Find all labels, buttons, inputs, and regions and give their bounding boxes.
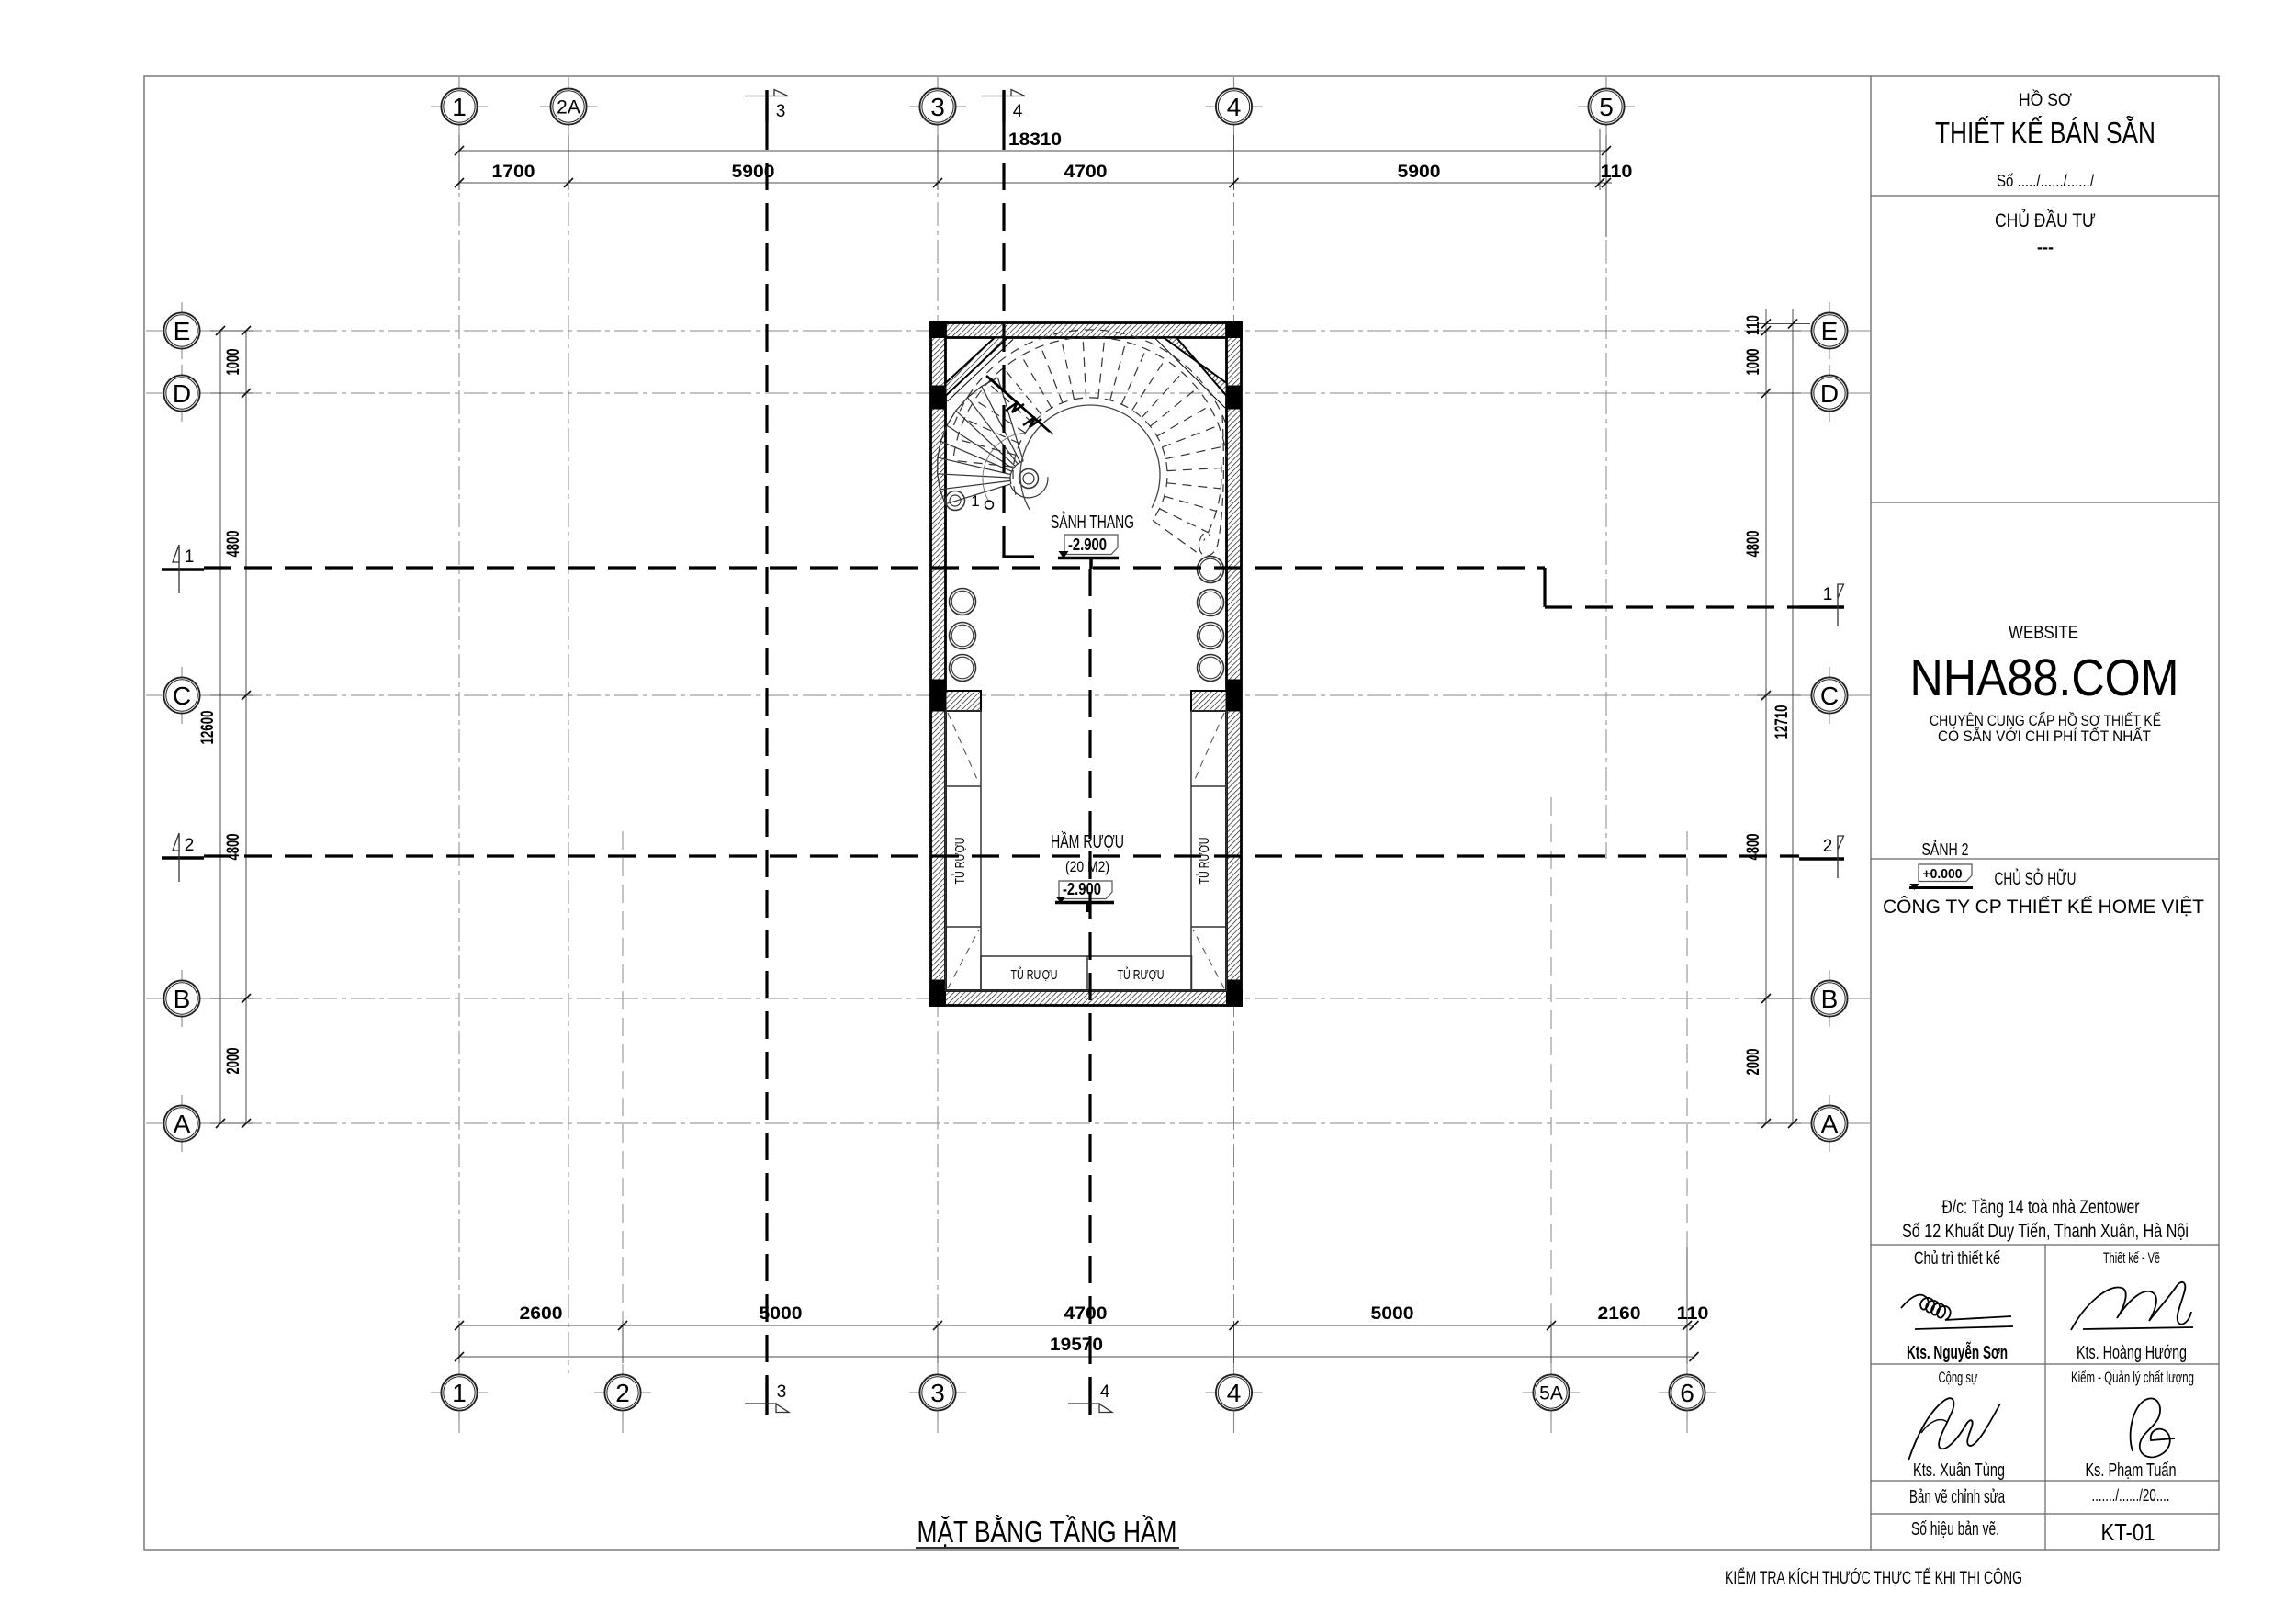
svg-text:4700: 4700: [1064, 163, 1108, 182]
svg-text:3: 3: [930, 93, 945, 121]
svg-text:2000: 2000: [1744, 1049, 1763, 1076]
svg-text:A: A: [1821, 1110, 1839, 1138]
svg-text:2160: 2160: [1598, 1304, 1641, 1324]
svg-text:Kiểm - Quản lý chất lượng: Kiểm - Quản lý chất lượng: [2071, 1369, 2194, 1386]
svg-text:SẢNH 2: SẢNH 2: [1922, 840, 1969, 859]
svg-text:TỦ RƯỢU: TỦ RƯỢU: [951, 838, 968, 885]
svg-text:Cộng sự: Cộng sự: [1939, 1369, 1978, 1386]
svg-text:Kts. Xuân Tùng: Kts. Xuân Tùng: [1913, 1460, 2005, 1481]
svg-text:CÔNG TY CP THIẾT KẾ HOME VIỆT: CÔNG TY CP THIẾT KẾ HOME VIỆT: [1883, 895, 2204, 918]
svg-text:C: C: [173, 682, 191, 710]
svg-text:5000: 5000: [1371, 1304, 1414, 1324]
svg-text:6: 6: [1680, 1379, 1694, 1407]
svg-text:2: 2: [615, 1379, 630, 1407]
svg-text:Số hiệu bản vẽ.: Số hiệu bản vẽ.: [1911, 1519, 1999, 1539]
svg-text:2A: 2A: [557, 97, 580, 118]
svg-text:TỦ RƯỢU: TỦ RƯỢU: [1011, 966, 1058, 983]
svg-text:E: E: [1821, 317, 1839, 345]
svg-text:MẶT BẰNG TẦNG HẦM: MẶT BẰNG TẦNG HẦM: [917, 1515, 1177, 1549]
svg-text:......./....../20....: ......./....../20....: [2092, 1486, 2170, 1505]
svg-text:3: 3: [776, 102, 786, 121]
svg-text:1: 1: [971, 492, 979, 510]
svg-text:4700: 4700: [1064, 1304, 1108, 1324]
svg-text:1: 1: [1823, 585, 1833, 604]
svg-text:(20 M2): (20 M2): [1065, 858, 1109, 875]
svg-text:Bản vẽ chỉnh sửa: Bản vẽ chỉnh sửa: [1909, 1487, 2006, 1507]
svg-text:Kts. Nguyễn Sơn: Kts. Nguyễn Sơn: [1907, 1341, 2008, 1363]
svg-text:1: 1: [452, 1379, 467, 1407]
svg-text:Chủ trì thiết kế: Chủ trì thiết kế: [1914, 1249, 2000, 1269]
svg-text:110: 110: [1601, 163, 1633, 182]
svg-text:1: 1: [185, 547, 195, 567]
svg-text:Thiết kế - Vẽ: Thiết kế - Vẽ: [2103, 1249, 2160, 1267]
svg-text:2: 2: [1823, 837, 1833, 856]
svg-text:SẢNH THANG: SẢNH THANG: [1051, 512, 1134, 533]
svg-text:Số 12 Khuất Duy Tiến, Thanh Xu: Số 12 Khuất Duy Tiến, Thanh Xuân, Hà Nội: [1902, 1221, 2189, 1242]
svg-text:3: 3: [777, 1382, 787, 1402]
svg-text:E: E: [174, 317, 191, 345]
svg-text:KIỂM TRA KÍCH THƯỚC THỰC TẾ KH: KIỂM TRA KÍCH THƯỚC THỰC TẾ KHI THI CÔNG: [1725, 1568, 2022, 1588]
svg-text:TỦ RƯỢU: TỦ RƯỢU: [1118, 966, 1165, 983]
svg-text:CÓ SẴN VỚI CHI PHÍ TỐT NHẤT: CÓ SẴN VỚI CHI PHÍ TỐT NHẤT: [1938, 727, 2151, 745]
svg-text:NHA88.COM: NHA88.COM: [1910, 648, 2179, 707]
svg-text:2600: 2600: [520, 1304, 563, 1324]
svg-text:4: 4: [1013, 102, 1023, 121]
svg-text:C: C: [1820, 682, 1839, 710]
svg-text:1000: 1000: [1744, 349, 1763, 376]
svg-text:5900: 5900: [1398, 163, 1441, 182]
svg-text:4: 4: [1100, 1382, 1110, 1402]
svg-text:19570: 19570: [1050, 1336, 1103, 1355]
svg-text:4800: 4800: [1744, 531, 1763, 558]
svg-text:+0.000: +0.000: [1923, 866, 1963, 882]
svg-text:Kts. Hoàng Hướng: Kts. Hoàng Hướng: [2077, 1343, 2187, 1363]
svg-text:1000: 1000: [224, 349, 243, 376]
svg-text:12600: 12600: [198, 711, 218, 745]
svg-text:-2.900: -2.900: [1063, 880, 1101, 898]
svg-text:Ks. Phạm Tuấn: Ks. Phạm Tuấn: [2086, 1460, 2177, 1481]
svg-text:HẦM RƯỢU: HẦM RƯỢU: [1051, 831, 1124, 852]
svg-text:4800: 4800: [224, 531, 243, 558]
svg-text:---: ---: [2037, 238, 2054, 256]
svg-text:KT-01: KT-01: [2101, 1518, 2155, 1546]
svg-text:18310: 18310: [1008, 130, 1062, 150]
svg-text:D: D: [173, 379, 191, 408]
svg-text:Số ...../....../....../: Số ...../....../....../: [1997, 172, 2094, 190]
svg-text:110: 110: [1744, 315, 1763, 335]
svg-text:-2.900: -2.900: [1068, 536, 1107, 554]
svg-text:TỦ RƯỢU: TỦ RƯỢU: [1196, 838, 1212, 885]
svg-text:HỒ SƠ: HỒ SƠ: [2019, 90, 2072, 110]
svg-text:2: 2: [185, 836, 195, 855]
svg-text:3: 3: [930, 1379, 945, 1407]
svg-text:5: 5: [1599, 93, 1614, 121]
svg-text:THIẾT KẾ BÁN SẴN: THIẾT KẾ BÁN SẴN: [1935, 116, 2155, 150]
svg-text:B: B: [174, 985, 191, 1013]
svg-text:CHỦ ĐẦU TƯ: CHỦ ĐẦU TƯ: [1995, 209, 2096, 231]
svg-text:A: A: [174, 1110, 191, 1138]
svg-text:D: D: [1820, 379, 1839, 408]
svg-text:CHỦ SỞ HỮU: CHỦ SỞ HỮU: [1995, 867, 2077, 889]
svg-text:4: 4: [1227, 93, 1242, 121]
svg-text:Đ/c: Tầng 14 toà nhà Zentower: Đ/c: Tầng 14 toà nhà Zentower: [1942, 1197, 2140, 1218]
svg-text:2000: 2000: [224, 1048, 243, 1075]
svg-text:B: B: [1821, 985, 1839, 1013]
svg-text:1: 1: [452, 93, 467, 121]
svg-text:1700: 1700: [492, 163, 535, 182]
svg-text:110: 110: [1677, 1304, 1709, 1324]
svg-text:WEBSITE: WEBSITE: [2009, 623, 2078, 643]
svg-text:4: 4: [1227, 1379, 1242, 1407]
svg-text:12710: 12710: [1773, 705, 1792, 739]
svg-text:5A: 5A: [1539, 1383, 1563, 1404]
